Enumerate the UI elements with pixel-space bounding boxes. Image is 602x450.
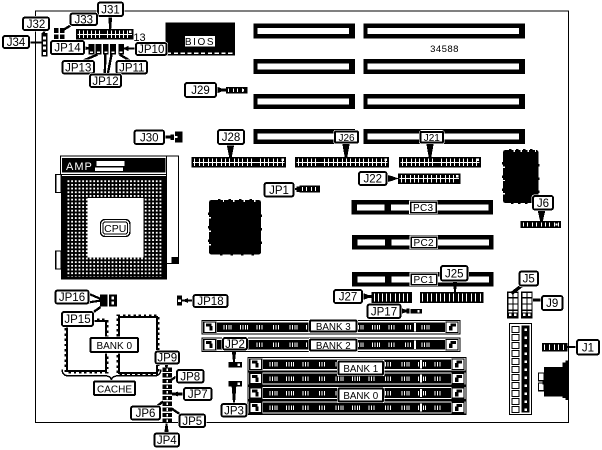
svg-text:JP11: JP11 — [119, 62, 144, 74]
svg-text:J34: J34 — [7, 37, 26, 49]
svg-text:J29: J29 — [191, 85, 210, 97]
svg-text:BANK 0: BANK 0 — [96, 341, 132, 352]
svg-text:JP18: JP18 — [197, 296, 223, 308]
svg-text:BIOS: BIOS — [185, 37, 215, 48]
svg-text:JP3: JP3 — [224, 405, 244, 417]
svg-text:JP4: JP4 — [157, 435, 177, 447]
svg-text:JP12: JP12 — [92, 76, 118, 88]
svg-text:JP5: JP5 — [182, 416, 202, 428]
svg-text:J30: J30 — [140, 132, 159, 144]
svg-text:JP14: JP14 — [54, 43, 81, 55]
svg-text:J28: J28 — [222, 132, 241, 144]
svg-text:J31: J31 — [101, 4, 120, 16]
svg-text:J32: J32 — [27, 19, 46, 31]
svg-text:JP13: JP13 — [65, 62, 91, 74]
svg-text:J33: J33 — [74, 14, 93, 26]
svg-text:PC2: PC2 — [414, 238, 434, 249]
svg-text:J22: J22 — [363, 174, 382, 186]
svg-text:JP17: JP17 — [371, 306, 397, 318]
svg-text:J1: J1 — [582, 342, 594, 354]
svg-text:PC1: PC1 — [414, 275, 434, 286]
svg-text:BANK 2: BANK 2 — [316, 341, 351, 352]
svg-text:J9: J9 — [546, 298, 558, 310]
svg-text:PC3: PC3 — [413, 203, 433, 214]
svg-text:JP6: JP6 — [136, 408, 156, 420]
svg-text:BANK 0: BANK 0 — [343, 391, 378, 402]
svg-text:JP16: JP16 — [59, 292, 85, 304]
svg-text:JP2: JP2 — [225, 339, 245, 351]
svg-text:34588: 34588 — [430, 44, 459, 55]
svg-text:J26: J26 — [338, 133, 355, 144]
svg-text:J6: J6 — [537, 198, 549, 210]
svg-text:J25: J25 — [445, 268, 464, 280]
svg-text:JP1: JP1 — [269, 185, 289, 197]
svg-text:BANK 1: BANK 1 — [343, 364, 378, 375]
svg-text:JP8: JP8 — [180, 371, 200, 383]
svg-text:J21: J21 — [424, 133, 441, 144]
svg-text:JP7: JP7 — [188, 389, 208, 401]
svg-text:JP9: JP9 — [157, 353, 177, 365]
svg-text:JP15: JP15 — [64, 314, 90, 326]
svg-text:J27: J27 — [339, 292, 358, 304]
svg-text:JP10: JP10 — [138, 44, 164, 56]
svg-text:J5: J5 — [523, 274, 535, 286]
svg-text:CACHE: CACHE — [97, 384, 132, 395]
svg-text:CPU: CPU — [104, 223, 126, 235]
svg-text:AMP: AMP — [66, 161, 93, 173]
svg-text:BANK 3: BANK 3 — [316, 322, 351, 333]
